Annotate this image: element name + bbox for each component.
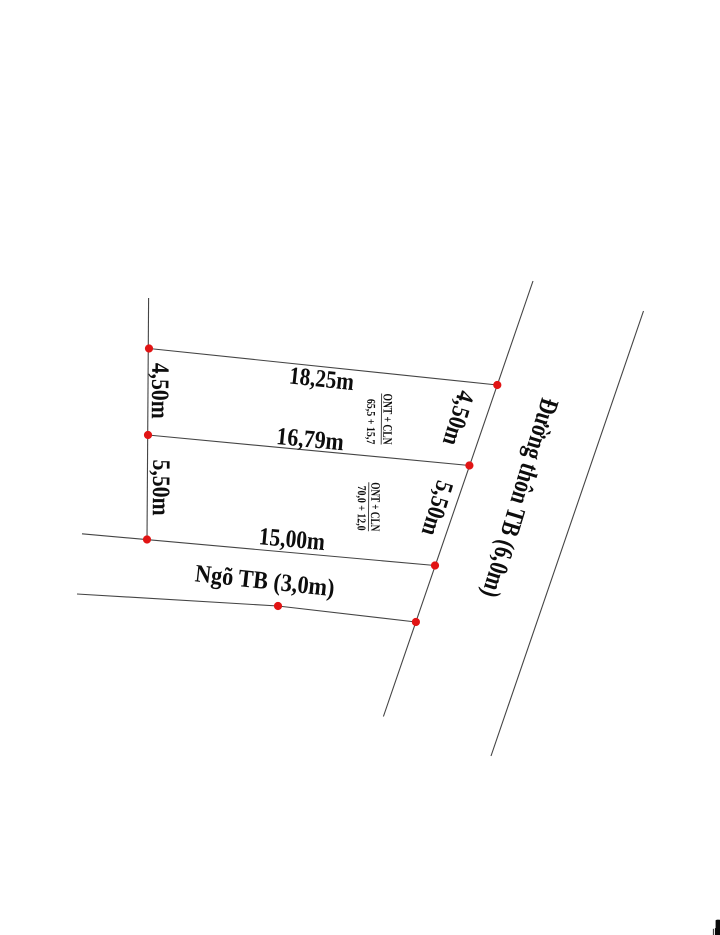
svg-text:ONT + CLN: ONT + CLN xyxy=(380,393,395,445)
svg-text:5,50m: 5,50m xyxy=(147,459,174,515)
svg-text:65,5 + 15,7: 65,5 + 15,7 xyxy=(364,399,378,445)
svg-text:4,50m: 4,50m xyxy=(146,363,173,419)
svg-text:70,0 + 12,0: 70,0 + 12,0 xyxy=(355,486,369,531)
svg-text:ONT + CLN: ONT + CLN xyxy=(368,482,383,532)
